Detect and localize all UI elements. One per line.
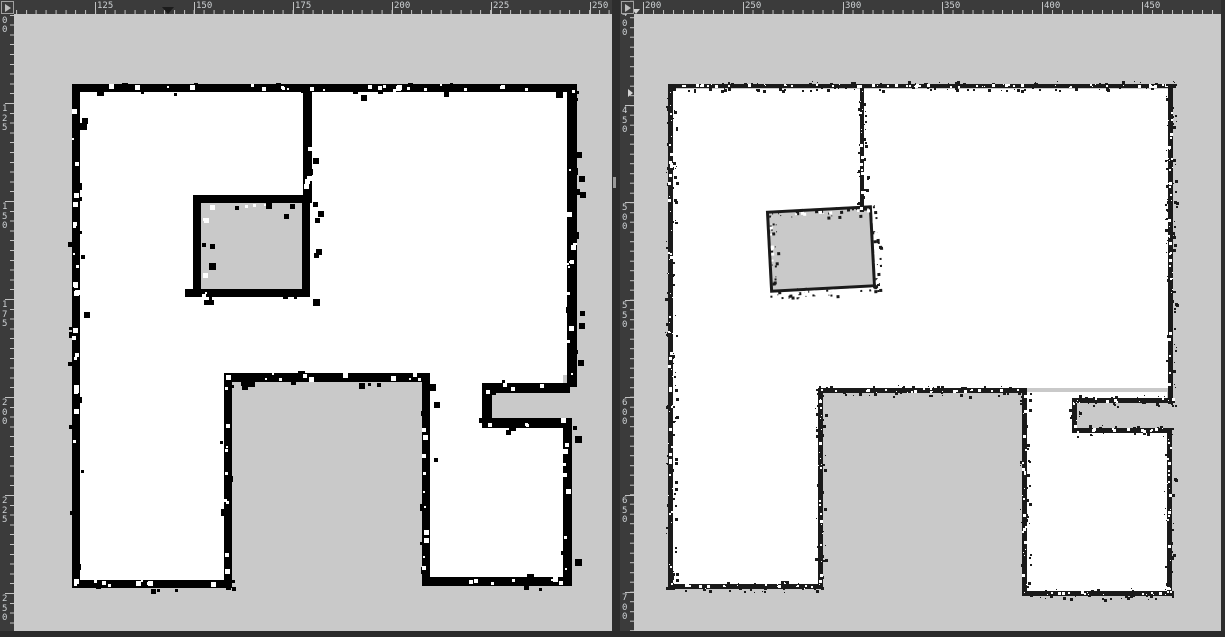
noise-dot xyxy=(1165,566,1167,568)
noise-dot xyxy=(864,189,866,191)
noise-dot xyxy=(580,192,586,198)
ruler-major-tick xyxy=(392,2,393,14)
noise-dot xyxy=(563,463,566,466)
noise-dot xyxy=(1148,599,1149,600)
noise-dot xyxy=(1172,379,1173,380)
ruler-tick-label: 150 xyxy=(196,1,212,11)
noise-dot xyxy=(669,226,670,227)
noise-dot xyxy=(1173,126,1176,129)
noise-dot xyxy=(1119,87,1121,89)
noise-dot xyxy=(1027,586,1029,588)
noise-dot xyxy=(875,262,876,263)
noise-dot xyxy=(1168,398,1170,400)
noise-dot xyxy=(670,153,673,156)
noise-dot xyxy=(1165,594,1166,595)
noise-dot xyxy=(1173,236,1176,239)
noise-dot xyxy=(272,373,274,375)
noise-dot xyxy=(1022,462,1024,464)
noise-dot xyxy=(489,388,496,395)
noise-dot xyxy=(858,108,859,109)
ruler-tick-label: 250 xyxy=(592,1,608,11)
noise-dot xyxy=(1170,560,1171,561)
noise-dot xyxy=(847,208,850,211)
noise-dot xyxy=(1167,488,1168,489)
noise-dot xyxy=(1024,89,1026,91)
noise-dot xyxy=(672,297,673,298)
noise-dot xyxy=(1054,595,1055,596)
noise-dot xyxy=(676,573,679,576)
noise-dot xyxy=(673,118,674,119)
horizontal-ruler[interactable]: 200250300350400450 xyxy=(620,0,1221,14)
noise-dot xyxy=(669,389,672,392)
noise-dot xyxy=(827,216,830,219)
noise-dot xyxy=(316,249,322,255)
noise-dot xyxy=(1171,556,1173,558)
noise-dot xyxy=(440,84,442,86)
noise-dot xyxy=(874,247,876,249)
noise-dot xyxy=(775,276,776,277)
noise-dot xyxy=(825,414,828,417)
noise-dot xyxy=(576,91,579,94)
noise-dot xyxy=(707,585,710,588)
noise-dot xyxy=(1001,386,1002,387)
noise-dot xyxy=(1169,488,1170,489)
noise-dot xyxy=(904,389,906,391)
noise-dot xyxy=(1088,594,1089,595)
noise-dot xyxy=(434,458,438,462)
noise-dot xyxy=(870,213,871,214)
noise-dot xyxy=(1072,416,1074,418)
noise-dot xyxy=(978,389,981,392)
noise-dot xyxy=(307,108,311,112)
noise-dot xyxy=(1139,401,1140,402)
noise-dot xyxy=(1167,483,1168,484)
noise-dot xyxy=(791,216,792,217)
noise-dot xyxy=(958,86,960,88)
noise-dot xyxy=(540,384,544,388)
noise-dot xyxy=(1169,355,1171,357)
noise-dot xyxy=(816,89,818,91)
noise-dot xyxy=(820,513,822,515)
noise-dot xyxy=(1169,226,1170,227)
noise-dot xyxy=(1168,120,1169,121)
noise-dot xyxy=(1025,519,1028,522)
noise-dot xyxy=(773,223,775,225)
noise-dot xyxy=(1035,83,1038,86)
noise-dot xyxy=(486,390,490,394)
noise-dot xyxy=(818,479,820,481)
ruler-position-marker xyxy=(162,7,174,14)
noise-dot xyxy=(68,362,72,366)
noise-dot xyxy=(72,521,77,526)
noise-dot xyxy=(1168,462,1171,465)
horizontal-ruler[interactable]: 125150175200225250 xyxy=(0,0,612,14)
noise-dot xyxy=(76,390,79,393)
noise-dot xyxy=(963,83,964,84)
noise-dot xyxy=(791,85,793,87)
noise-dot xyxy=(1171,403,1173,405)
noise-dot xyxy=(1172,167,1173,168)
noise-dot xyxy=(817,484,820,487)
noise-dot xyxy=(1174,226,1176,228)
noise-dot xyxy=(845,394,847,396)
noise-dot xyxy=(675,220,676,221)
noise-dot xyxy=(817,82,818,83)
noise-dot xyxy=(1168,515,1170,517)
ruler-position-marker xyxy=(628,89,633,97)
noise-dot xyxy=(318,211,324,217)
noise-dot xyxy=(670,165,673,168)
noise-dot xyxy=(1170,435,1172,437)
noise-dot xyxy=(290,204,295,209)
noise-dot xyxy=(1174,362,1175,363)
ruler-tick-label: 400 xyxy=(1044,1,1060,11)
noise-dot xyxy=(731,83,734,86)
noise-dot xyxy=(84,312,90,318)
noise-dot xyxy=(1025,549,1026,550)
noise-dot xyxy=(1044,85,1047,88)
noise-dot xyxy=(765,85,766,86)
noise-dot xyxy=(1165,204,1167,206)
noise-dot xyxy=(816,389,818,391)
noise-dot xyxy=(859,114,861,116)
noise-dot xyxy=(1075,596,1076,597)
noise-dot xyxy=(682,85,684,87)
ruler-major-tick xyxy=(491,2,492,14)
noise-dot xyxy=(768,86,769,87)
ruler-tick-label: 450 xyxy=(622,107,629,136)
noise-dot xyxy=(665,298,668,301)
noise-dot xyxy=(671,197,673,199)
noise-dot xyxy=(450,83,453,86)
noise-dot xyxy=(771,252,774,255)
noise-dot xyxy=(674,176,677,179)
noise-dot xyxy=(764,587,767,590)
noise-dot xyxy=(1110,430,1112,432)
noise-dot xyxy=(1171,551,1173,553)
noise-dot xyxy=(312,263,316,267)
noise-dot xyxy=(772,265,773,266)
noise-dot xyxy=(864,124,865,125)
noise-dot xyxy=(822,395,824,397)
noise-dot xyxy=(74,291,79,296)
noise-dot xyxy=(424,538,429,543)
noise-dot xyxy=(1168,470,1170,472)
noise-dot xyxy=(895,84,898,87)
noise-dot xyxy=(823,464,825,466)
noise-dot xyxy=(94,580,97,583)
noise-dot xyxy=(1167,211,1168,212)
noise-dot xyxy=(685,590,687,592)
ruler-major-tick xyxy=(1042,2,1043,14)
noise-dot xyxy=(1077,431,1079,433)
noise-dot xyxy=(675,417,677,419)
noise-dot xyxy=(678,587,680,589)
noise-dot xyxy=(232,587,236,591)
noise-dot xyxy=(1022,468,1025,471)
noise-dot xyxy=(876,392,877,393)
noise-dot xyxy=(783,588,785,590)
noise-dot xyxy=(955,82,958,85)
noise-dot xyxy=(882,90,885,93)
noise-dot xyxy=(788,296,790,298)
noise-dot xyxy=(832,85,834,87)
noise-dot xyxy=(72,336,76,340)
noise-dot xyxy=(1112,428,1114,430)
noise-dot xyxy=(819,442,822,445)
noise-dot xyxy=(1172,529,1174,531)
noise-dot xyxy=(1172,272,1173,273)
ruler-tick-label: 200 xyxy=(645,1,661,11)
map-canvas[interactable] xyxy=(14,14,612,631)
inner-room xyxy=(766,205,876,292)
noise-dot xyxy=(1024,488,1025,489)
noise-dot xyxy=(1168,474,1170,476)
pane-divider[interactable] xyxy=(612,0,620,637)
noise-dot xyxy=(675,505,677,507)
noise-dot xyxy=(715,85,718,88)
noise-dot xyxy=(880,247,883,250)
noise-dot xyxy=(1146,594,1147,595)
ruler-major-tick xyxy=(743,2,744,14)
noise-dot xyxy=(81,470,84,473)
noise-dot xyxy=(1153,594,1154,595)
noise-dot xyxy=(875,217,877,219)
map-view-panel-right[interactable]: 200250300350400450400450500550600650700 xyxy=(620,0,1221,631)
ruler-corner-button[interactable] xyxy=(1,1,14,14)
noise-dot xyxy=(76,385,78,387)
map-view-panel-left[interactable]: 125150175200225250100125150175200225250 xyxy=(0,0,612,631)
noise-dot xyxy=(569,261,571,263)
noise-dot xyxy=(1020,465,1021,466)
noise-dot xyxy=(932,391,933,392)
noise-dot xyxy=(1170,581,1171,582)
noise-dot xyxy=(171,582,175,586)
noise-dot xyxy=(1030,393,1032,395)
noise-dot xyxy=(942,395,943,396)
noise-dot xyxy=(797,288,798,289)
noise-dot xyxy=(69,425,73,429)
noise-dot xyxy=(867,178,869,180)
noise-dot xyxy=(1079,411,1080,412)
noise-dot xyxy=(674,376,676,378)
noise-dot xyxy=(865,115,867,117)
noise-dot xyxy=(982,86,983,87)
noise-dot xyxy=(1159,429,1160,430)
noise-dot xyxy=(830,386,833,389)
noise-dot xyxy=(1056,84,1058,86)
noise-dot xyxy=(875,285,878,288)
noise-dot xyxy=(823,213,824,214)
noise-dot xyxy=(815,558,818,561)
noise-dot xyxy=(669,454,671,456)
noise-dot xyxy=(674,493,676,495)
noise-dot xyxy=(1051,592,1053,594)
noise-dot xyxy=(937,386,940,389)
noise-dot xyxy=(1047,594,1048,595)
noise-dot xyxy=(1171,200,1172,201)
noise-dot xyxy=(204,300,209,305)
noise-dot xyxy=(1102,425,1103,426)
ruler-tick-label: 150 xyxy=(2,203,9,232)
noise-dot xyxy=(1166,360,1168,362)
noise-dot xyxy=(672,333,673,334)
noise-dot xyxy=(826,387,828,389)
noise-dot xyxy=(835,390,837,392)
noise-dot xyxy=(423,517,430,524)
noise-dot xyxy=(950,86,952,88)
noise-dot xyxy=(785,581,787,583)
noise-dot xyxy=(675,551,677,553)
noise-dot xyxy=(1169,372,1171,374)
noise-dot xyxy=(1155,428,1158,431)
noise-dot xyxy=(919,87,920,88)
noise-dot xyxy=(670,105,671,106)
noise-dot xyxy=(689,585,691,587)
noise-dot xyxy=(1023,498,1025,500)
noise-dot xyxy=(881,388,883,390)
noise-dot xyxy=(266,203,272,209)
noise-dot xyxy=(666,527,668,529)
noise-dot xyxy=(1170,151,1173,154)
noise-dot xyxy=(1175,387,1176,388)
noise-dot xyxy=(675,518,678,521)
noise-dot xyxy=(1133,595,1135,597)
noise-dot xyxy=(73,440,76,443)
noise-dot xyxy=(361,95,367,101)
noise-dot xyxy=(879,89,881,91)
free-space-region xyxy=(672,388,820,587)
noise-dot xyxy=(1131,596,1133,598)
noise-dot xyxy=(567,292,570,295)
noise-dot xyxy=(771,260,773,262)
noise-dot xyxy=(798,583,799,584)
noise-dot xyxy=(861,169,863,171)
noise-dot xyxy=(1172,405,1174,407)
noise-dot xyxy=(671,406,673,408)
noise-dot xyxy=(818,465,819,466)
ruler-major-tick xyxy=(293,2,294,14)
noise-dot xyxy=(676,129,678,131)
noise-dot xyxy=(315,218,320,223)
noise-dot xyxy=(880,258,882,260)
noise-dot xyxy=(667,504,670,507)
noise-dot xyxy=(167,86,169,88)
ruler-tick-label: 600 xyxy=(622,399,629,428)
noise-dot xyxy=(553,577,558,582)
noise-dot xyxy=(811,586,813,588)
scrollbar-thumb[interactable] xyxy=(613,177,616,188)
noise-dot xyxy=(1167,519,1169,521)
noise-dot xyxy=(1028,582,1031,585)
noise-dot xyxy=(863,138,866,141)
ruler-corner-button[interactable] xyxy=(621,1,634,14)
noise-dot xyxy=(669,564,670,565)
noise-dot xyxy=(225,387,228,390)
noise-dot xyxy=(73,182,77,186)
noise-dot xyxy=(579,176,585,182)
noise-dot xyxy=(906,85,908,87)
noise-dot xyxy=(1027,474,1030,477)
noise-dot xyxy=(1175,303,1178,306)
noise-dot xyxy=(672,376,673,377)
noise-dot xyxy=(224,462,230,468)
noise-dot xyxy=(681,585,682,586)
noise-dot xyxy=(1173,159,1176,162)
noise-dot xyxy=(825,455,826,456)
noise-dot xyxy=(1167,160,1168,161)
noise-dot xyxy=(668,148,669,149)
noise-dot xyxy=(778,213,779,214)
noise-dot xyxy=(80,123,87,130)
map-canvas[interactable] xyxy=(634,14,1221,631)
noise-dot xyxy=(709,88,712,91)
noise-dot xyxy=(1171,311,1173,313)
noise-dot xyxy=(860,101,861,102)
noise-dot xyxy=(705,588,706,589)
noise-dot xyxy=(422,376,429,383)
noise-dot xyxy=(1114,404,1116,406)
noise-dot xyxy=(877,85,878,86)
noise-dot xyxy=(202,243,206,247)
noise-dot xyxy=(896,391,897,392)
noise-dot xyxy=(670,92,671,93)
vertical-ruler[interactable]: 400450500550600650700 xyxy=(620,0,634,631)
noise-dot xyxy=(141,580,143,582)
noise-dot xyxy=(830,211,832,213)
noise-dot xyxy=(1022,426,1023,427)
noise-dot xyxy=(774,278,776,280)
noise-dot xyxy=(567,263,569,265)
vertical-ruler[interactable]: 100125150175200225250 xyxy=(0,0,14,631)
noise-dot xyxy=(686,587,687,588)
noise-dot xyxy=(1170,194,1172,196)
noise-dot xyxy=(1145,403,1146,404)
noise-dot xyxy=(249,300,252,303)
noise-dot xyxy=(1167,240,1168,241)
noise-dot xyxy=(777,586,778,587)
noise-dot xyxy=(1165,229,1168,232)
noise-dot xyxy=(744,83,747,86)
noise-dot xyxy=(1135,429,1136,430)
noise-dot xyxy=(203,218,206,221)
noise-dot xyxy=(1166,150,1167,151)
noise-dot xyxy=(668,283,670,285)
noise-dot xyxy=(1169,520,1171,522)
noise-dot xyxy=(1095,593,1097,595)
noise-dot xyxy=(770,234,772,236)
noise-dot xyxy=(801,213,802,214)
noise-dot xyxy=(232,580,235,583)
noise-dot xyxy=(670,256,673,259)
noise-dot xyxy=(828,295,829,296)
noise-dot xyxy=(812,81,813,82)
noise-dot xyxy=(1029,557,1031,559)
noise-dot xyxy=(1025,466,1027,468)
noise-dot xyxy=(776,231,777,232)
noise-dot xyxy=(1076,420,1077,421)
noise-dot xyxy=(1174,328,1176,330)
ruler-tick-label: 700 xyxy=(622,594,629,623)
noise-dot xyxy=(780,212,781,213)
noise-dot xyxy=(1174,244,1177,247)
noise-dot xyxy=(816,435,819,438)
noise-dot xyxy=(1115,426,1117,428)
map-wall xyxy=(487,383,570,393)
noise-dot xyxy=(820,407,822,409)
noise-dot xyxy=(991,390,993,392)
noise-dot xyxy=(670,268,673,271)
